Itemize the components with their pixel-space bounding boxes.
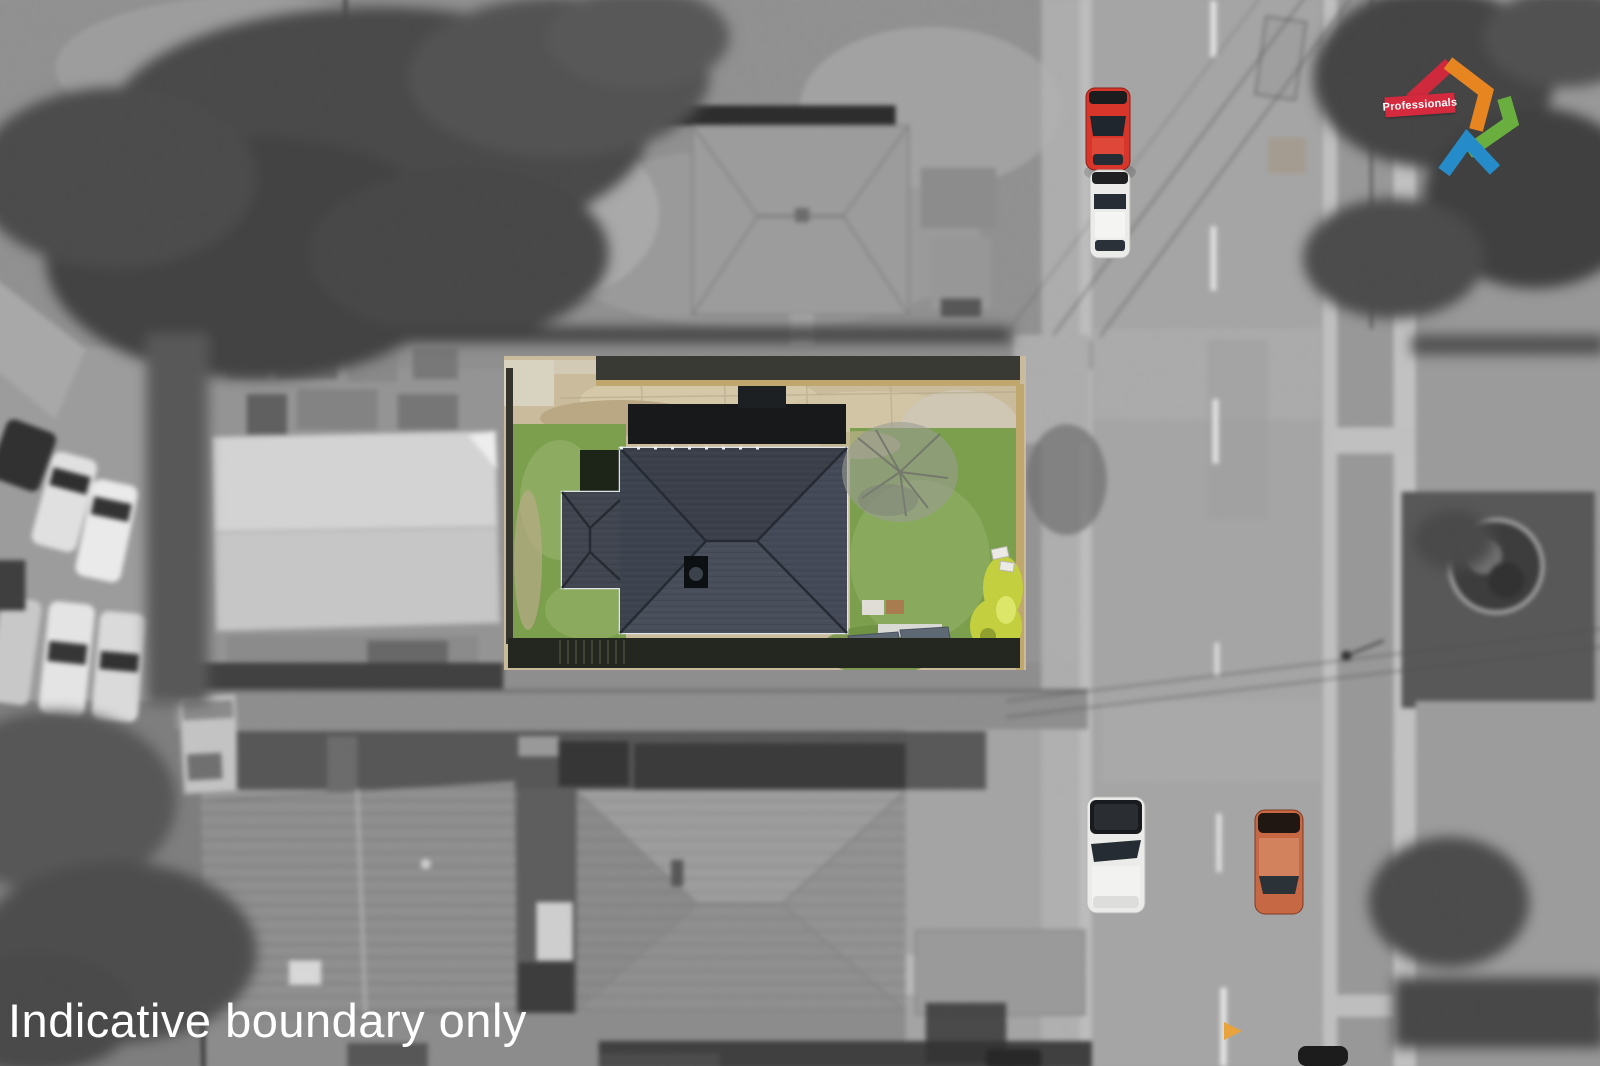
rear-shed-roof xyxy=(628,404,846,444)
west-fence xyxy=(506,368,513,644)
white-ute-south xyxy=(1087,797,1145,913)
subject-property xyxy=(504,356,1026,675)
north-hedge xyxy=(596,356,1020,382)
orange-car-south xyxy=(1255,810,1303,914)
dark-car-south-edge xyxy=(1298,1046,1348,1066)
logo-brand-text: Professionals xyxy=(1382,96,1457,113)
road-arrow-marking xyxy=(1224,1022,1242,1040)
foreground xyxy=(0,0,1600,1066)
white-car-north xyxy=(1090,170,1130,258)
street-cars xyxy=(1084,88,1348,1066)
caption-indicative-boundary: Indicative boundary only xyxy=(8,995,527,1047)
professionals-logo: Professionals xyxy=(1378,48,1548,198)
south-fence xyxy=(508,638,1020,668)
garden-tree xyxy=(842,422,958,522)
red-car xyxy=(1086,88,1130,170)
aerial-photo: Professionals Indicative boundary only xyxy=(0,0,1600,1066)
professionals-star-icon xyxy=(1378,48,1548,198)
